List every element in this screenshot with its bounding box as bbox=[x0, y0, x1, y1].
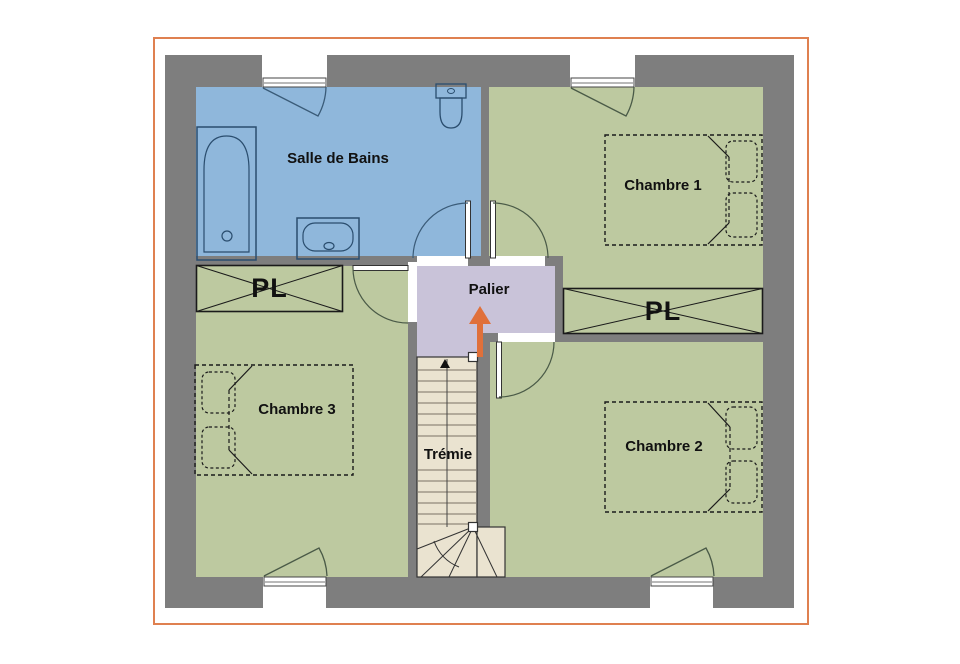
closet-right-label: PL bbox=[563, 294, 763, 328]
bed-icon-bedroom3 bbox=[195, 365, 353, 475]
bathroom-label: Salle de Bains bbox=[238, 150, 438, 168]
bedroom1-label: Chambre 1 bbox=[563, 177, 763, 195]
bathtub-icon bbox=[197, 127, 256, 260]
door-swing-icon bbox=[353, 203, 554, 397]
door-leaf-icon bbox=[353, 201, 502, 398]
washbasin-icon bbox=[297, 218, 359, 259]
bedroom2-label: Chambre 2 bbox=[564, 438, 764, 456]
stairwell-label: Trémie bbox=[398, 446, 498, 464]
toilet-icon bbox=[436, 84, 466, 128]
landing-label: Palier bbox=[439, 281, 539, 299]
closet-left-label: PL bbox=[194, 271, 345, 305]
plan-linework bbox=[0, 0, 960, 664]
floorplan-canvas: Salle de Bains Chambre 1 Chambre 3 Chamb… bbox=[0, 0, 960, 664]
bedroom3-label: Chambre 3 bbox=[197, 401, 397, 419]
stairs-icon bbox=[417, 353, 505, 578]
stairs-up-arrow-icon bbox=[469, 306, 491, 357]
bed-icon-bedroom2 bbox=[605, 402, 762, 512]
